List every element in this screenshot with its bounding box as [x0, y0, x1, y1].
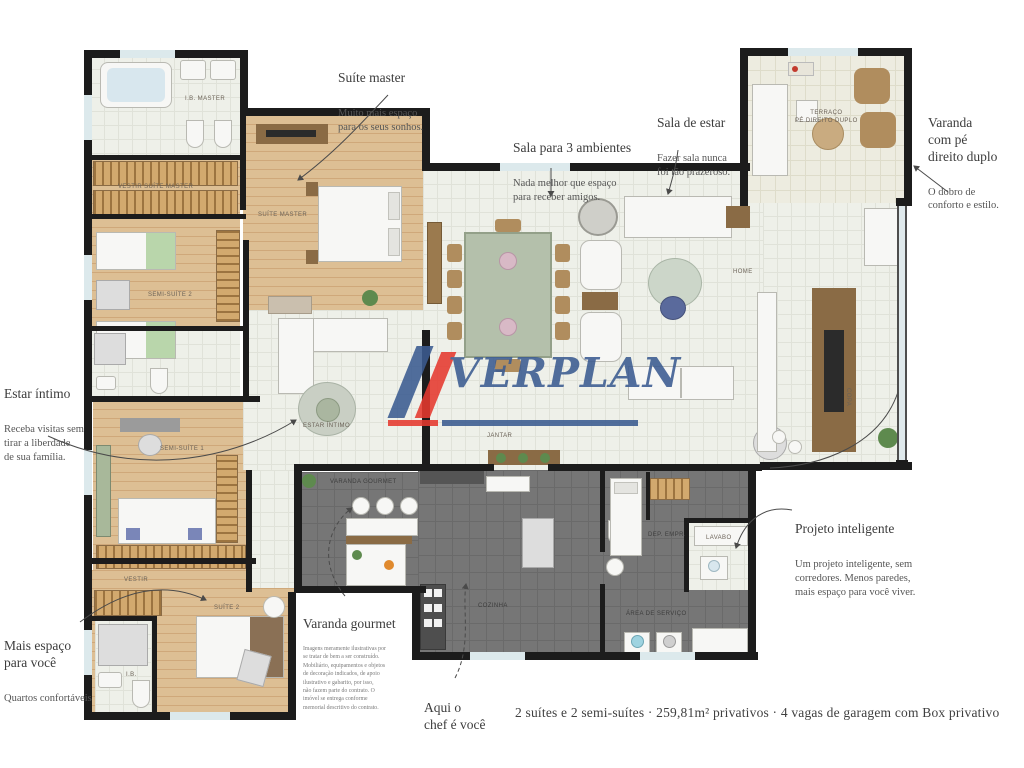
chair-icon: [555, 270, 570, 288]
wall: [294, 586, 426, 593]
note-mais-espaco: Mais espaço para você Quartos confortáve…: [4, 620, 104, 724]
verplan-watermark: VERPLAN: [384, 340, 654, 435]
pillow-icon: [614, 482, 638, 494]
wall: [896, 198, 908, 206]
note-sala-3-ambientes: Sala para 3 ambientes Nada melhor que es…: [513, 122, 663, 223]
note-body: Muito mais espaço para os seus sonhos.: [338, 107, 468, 135]
wall: [240, 115, 246, 210]
note-suite-master: Suíte master Muito mais espaço para os s…: [338, 52, 468, 153]
washer-door-icon: [631, 635, 644, 648]
room-label-suite-2: SUÍTE 2: [214, 605, 239, 613]
room-label-area-servico: ÁREA DE SERVIÇO: [626, 611, 687, 619]
fridge-icon: [522, 518, 554, 568]
shelf-icon: [96, 445, 111, 537]
centerpiece-icon: [499, 252, 517, 270]
plant-icon: [302, 474, 316, 488]
note-title: Suíte master: [338, 70, 468, 87]
room-label-semi-suite-2: SEMI-SUÍTE 2: [148, 292, 192, 300]
shower-icon: [94, 333, 126, 365]
stool-icon: [376, 497, 394, 515]
cooktop-icon: [424, 604, 432, 612]
cabinet-icon: [420, 470, 484, 484]
basin-icon: [708, 560, 720, 572]
plant-icon: [496, 453, 506, 463]
room-label-terraco: TERRAÇO PÉ DIREITO DUPLO: [795, 110, 858, 126]
plant-icon: [362, 290, 378, 306]
window: [170, 712, 230, 720]
wall: [412, 652, 758, 660]
note-projeto-inteligente: Projeto inteligente Um projeto inteligen…: [795, 503, 955, 617]
desk-icon: [96, 280, 130, 310]
cooktop-icon: [424, 619, 432, 627]
window: [84, 95, 92, 140]
stool-icon: [400, 497, 418, 515]
note-body: Um projeto inteligente, sem corredores. …: [795, 558, 955, 600]
toilet-icon: [150, 368, 168, 394]
nightstand-icon: [306, 182, 318, 196]
stool-icon: [352, 497, 370, 515]
verplan-logo-text: VERPLAN: [448, 353, 681, 394]
chair-icon: [447, 296, 462, 314]
wall: [243, 240, 249, 400]
sink-icon: [180, 60, 206, 80]
pouf-icon: [316, 398, 340, 422]
window: [788, 48, 858, 56]
wall: [288, 592, 296, 718]
desk-icon: [120, 418, 180, 432]
wicker-chair-icon: [854, 68, 890, 104]
window-wall: [897, 206, 907, 462]
note-title: Sala para 3 ambientes: [513, 140, 663, 157]
note-title: Estar íntimo: [4, 386, 94, 403]
toilet-icon: [186, 120, 204, 148]
note-body: O dobro de conforto e estilo.: [928, 186, 1018, 214]
wall: [240, 50, 248, 115]
disclaimer-text: Imagens meramente ilustrativas por se tr…: [303, 645, 411, 712]
wall: [548, 464, 762, 471]
wall: [84, 155, 246, 160]
counter-icon: [486, 476, 530, 492]
logo-underline-red: [388, 420, 438, 426]
wardrobe-icon: [216, 230, 240, 322]
bidet-icon: [214, 120, 232, 148]
tv-icon: [266, 130, 316, 137]
wall: [246, 470, 252, 592]
pillow-icon: [126, 528, 140, 540]
window: [84, 255, 92, 300]
centerpiece-icon: [499, 318, 517, 336]
wall: [294, 464, 494, 471]
chair-icon: [447, 322, 462, 340]
bed-blanket-icon: [146, 233, 175, 269]
wall: [152, 616, 157, 714]
window: [120, 50, 175, 58]
pouf-icon: [660, 296, 686, 320]
plant-icon: [540, 453, 550, 463]
room-label-copa: COPA: [843, 388, 851, 406]
room-label-semi-suite-1: SEMI-SUÍTE 1: [160, 446, 204, 454]
wall: [646, 472, 650, 520]
pillow-icon: [188, 528, 202, 540]
wall: [684, 518, 756, 523]
wall: [84, 396, 260, 402]
note-title: Varanda gourmet: [303, 616, 413, 633]
chair-icon: [447, 244, 462, 262]
pan-icon: [384, 560, 394, 570]
dryer-door-icon: [663, 635, 676, 648]
note-title: Sala de estar: [657, 115, 767, 132]
wardrobe-icon: [93, 190, 238, 215]
note-chef: Aqui o chef é você: [424, 682, 504, 752]
kitchenette-counter-icon: [864, 208, 898, 266]
logo-underline-blue: [442, 420, 638, 426]
pillow-icon: [388, 228, 400, 256]
note-body: Fazer sala nunca foi tão prazeroso.: [657, 152, 767, 180]
room-label-vestir-master: VESTIR SUÍTE MASTER: [118, 184, 193, 192]
floor-corridor: [246, 470, 300, 588]
chair-icon: [555, 322, 570, 340]
note-varanda-pe-direito: Varanda com pé direito duplo O dobro de …: [928, 97, 1018, 231]
wall: [600, 584, 605, 654]
note-body: Nada melhor que espaço para receber amig…: [513, 177, 663, 205]
side-table-icon: [582, 292, 618, 310]
shower-icon: [606, 558, 624, 576]
plant-icon: [352, 550, 362, 560]
room-label-lavabo: LAVABO: [706, 535, 732, 543]
floor-plan-page: I.B. MASTER VESTIR SUÍTE MASTER SEMI-SUÍ…: [0, 0, 1024, 768]
tv-icon: [824, 330, 844, 412]
wardrobe-icon: [96, 545, 246, 569]
room-label-ib-master: I.B. MASTER: [185, 96, 225, 104]
sink-icon: [96, 376, 116, 390]
sofa-icon: [278, 318, 314, 394]
cooktop-icon: [434, 604, 442, 612]
wall: [412, 588, 420, 658]
bathtub-water-icon: [107, 68, 165, 102]
note-sala-de-estar: Sala de estar Fazer sala nunca foi tão p…: [657, 97, 767, 198]
room-label-ib: I.B.: [126, 672, 137, 680]
laundry-sink-icon: [692, 628, 748, 654]
wardrobe-icon: [216, 455, 238, 543]
room-label-dep-empr: DEP. EMPR.: [648, 532, 686, 540]
counter-icon: [346, 536, 412, 544]
room-label-vestir: VESTIR: [124, 577, 148, 585]
stool-icon: [772, 430, 786, 444]
wall: [600, 470, 605, 552]
side-table-icon: [726, 206, 750, 228]
pillow-icon: [388, 192, 400, 220]
room-label-suite-master: SUÍTE MASTER: [258, 212, 307, 220]
note-estar-intimo: Estar íntimo Receba visitas sem tirar a …: [4, 368, 94, 482]
plant-icon: [878, 428, 898, 448]
wall: [84, 326, 246, 331]
wall: [684, 518, 689, 592]
shower-icon: [98, 624, 148, 666]
cooktop-icon: [434, 619, 442, 627]
wall: [904, 48, 912, 206]
wall: [748, 468, 756, 660]
wardrobe-icon: [93, 161, 238, 186]
bar-counter-icon: [346, 518, 418, 536]
note-title: Varanda com pé direito duplo: [928, 115, 1018, 166]
wall: [84, 558, 256, 564]
nightstand-icon: [306, 250, 318, 264]
room-label-varanda-gourmet: VARANDA GOURMET: [330, 479, 397, 487]
note-title: Aqui o chef é você: [424, 700, 504, 734]
window: [470, 652, 525, 660]
room-label-cozinha: COZINHA: [478, 603, 508, 611]
armchair-icon: [580, 240, 622, 290]
note-title: Projeto inteligente: [795, 521, 955, 538]
chair-icon: [555, 244, 570, 262]
wall: [760, 462, 912, 470]
plant-icon: [518, 453, 528, 463]
chair-icon: [138, 434, 162, 456]
room-label-home: HOME: [733, 269, 753, 277]
tray-item-icon: [792, 66, 798, 72]
wardrobe-icon: [94, 590, 162, 616]
wardrobe-icon: [648, 478, 690, 500]
room-label-estar-intimo: ESTAR ÍNTIMO: [303, 423, 350, 431]
toilet-icon: [132, 680, 150, 708]
buffet-icon: [427, 222, 442, 304]
chair-icon: [555, 296, 570, 314]
wicker-chair-icon: [860, 112, 896, 148]
sofa-icon: [757, 292, 777, 452]
window: [640, 652, 695, 660]
note-varanda-gourmet: Varanda gourmet: [303, 598, 413, 651]
note-body: Receba visitas sem tirar a liberdade de …: [4, 423, 94, 465]
bench-icon: [268, 296, 312, 314]
chair-icon: [447, 270, 462, 288]
side-table-icon: [263, 596, 285, 618]
wall: [294, 466, 302, 592]
note-body: Quartos confortáveis: [4, 692, 104, 706]
cooktop-icon: [434, 589, 442, 597]
stool-icon: [788, 440, 802, 454]
note-title: Mais espaço para você: [4, 638, 104, 672]
sink-icon: [210, 60, 236, 80]
wall: [84, 214, 246, 219]
footer-caption: 2 suítes e 2 semi-suítes · 259,81m² priv…: [515, 705, 999, 721]
